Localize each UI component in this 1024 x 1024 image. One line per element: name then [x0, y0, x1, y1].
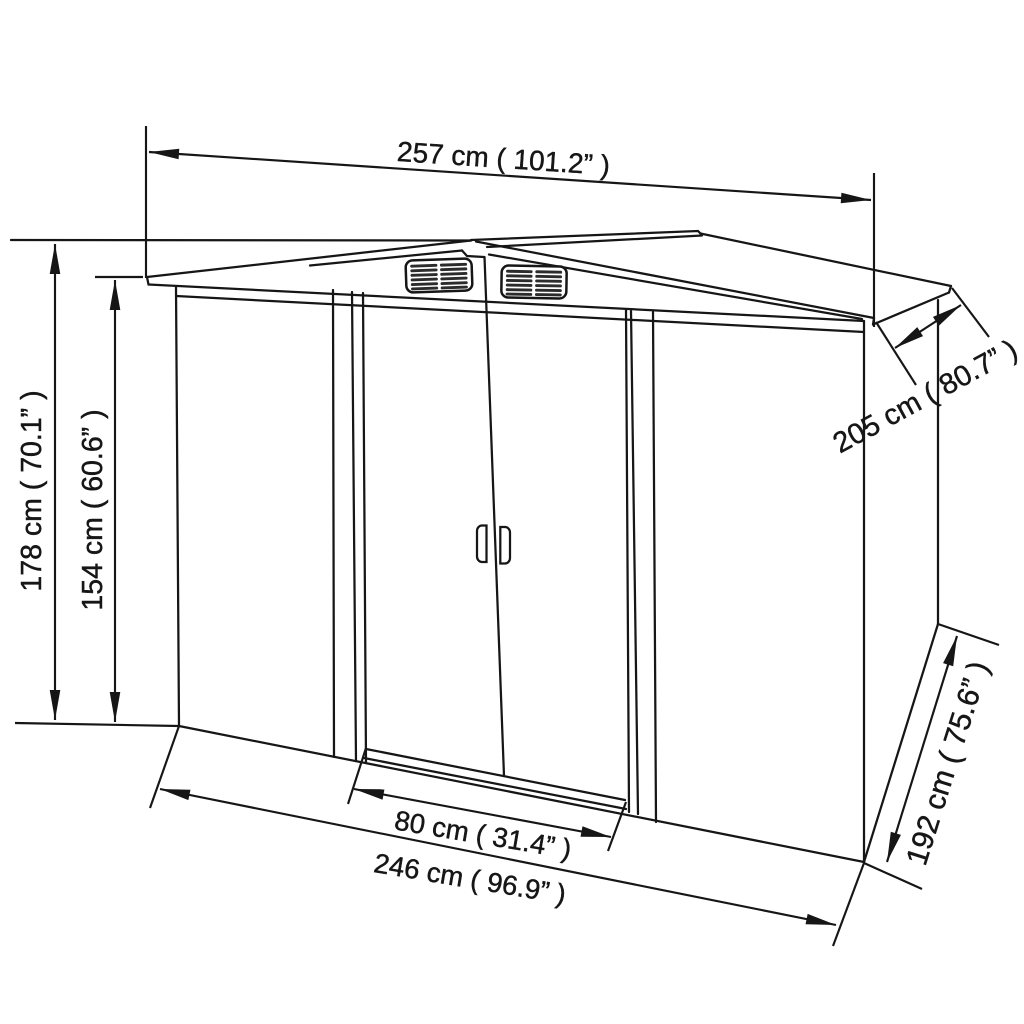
svg-text:154 cm ( 60.6” ): 154 cm ( 60.6” ) — [77, 409, 109, 610]
svg-text:178 cm ( 70.1” ): 178 cm ( 70.1” ) — [16, 390, 48, 591]
